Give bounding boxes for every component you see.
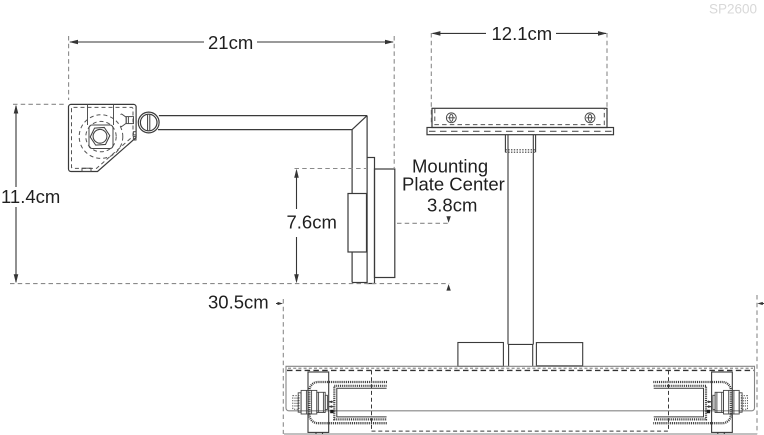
svg-text:30.5cm: 30.5cm	[208, 292, 269, 313]
svg-text:3.8cm: 3.8cm	[427, 195, 477, 216]
svg-text:Plate Center: Plate Center	[402, 174, 505, 195]
svg-text:12.1cm: 12.1cm	[492, 23, 553, 44]
svg-text:21cm: 21cm	[208, 32, 253, 53]
svg-text:11.4cm: 11.4cm	[1, 186, 60, 207]
svg-text:7.6cm: 7.6cm	[287, 212, 337, 233]
svg-text:SP2600: SP2600	[709, 2, 757, 17]
